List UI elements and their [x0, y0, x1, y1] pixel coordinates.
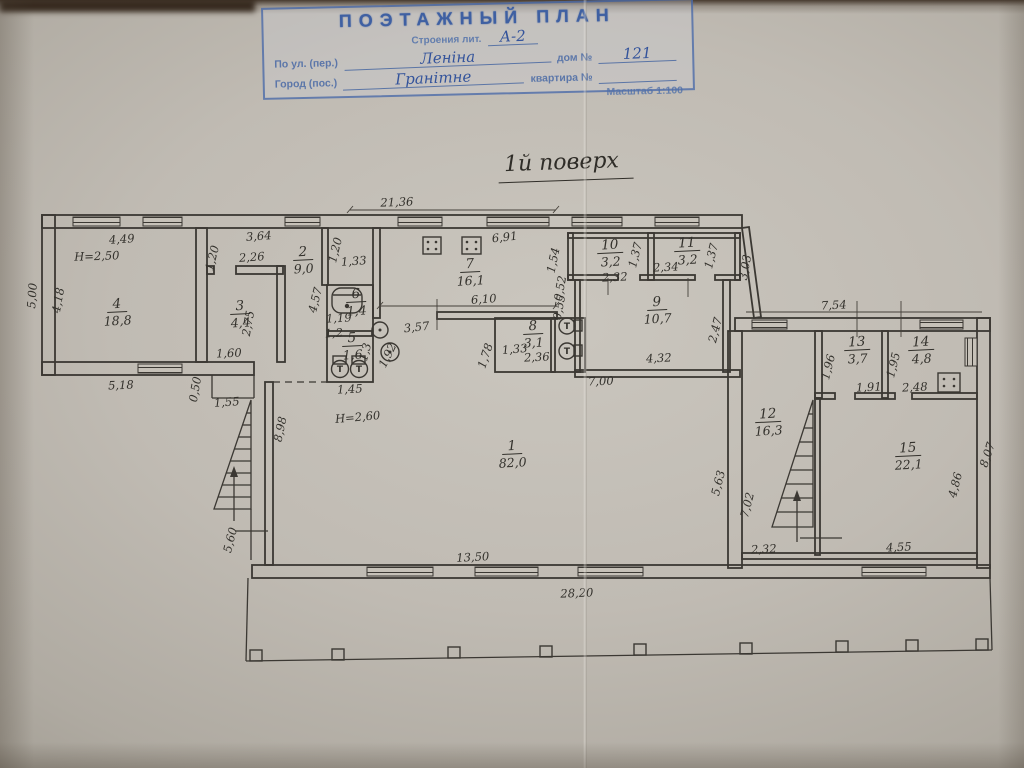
svg-text:14: 14 — [912, 334, 930, 351]
dimension-label: 1,91 — [856, 379, 882, 394]
svg-text:3,2: 3,2 — [600, 253, 621, 269]
sink-icon — [372, 322, 388, 338]
dimension-label: 28,20 — [559, 585, 593, 600]
room-label: 716,1 — [455, 255, 484, 288]
direction-arrow-icon — [793, 490, 801, 542]
room-label: 29,0 — [292, 243, 314, 276]
room-label: 182,0 — [497, 437, 527, 470]
dimension-label: 1,2 — [324, 326, 343, 341]
svg-text:13: 13 — [848, 334, 866, 351]
svg-text:82,0: 82,0 — [498, 454, 527, 470]
dimension-label: H=2,60 — [333, 408, 380, 426]
dimension-label: 3,03 — [736, 253, 754, 281]
photographed-floor-plan-page: { "stamp": { "title": "ПОЭТАЖНЫЙ ПЛАН", … — [0, 0, 1024, 768]
dimension-label: 6,10 — [470, 291, 497, 307]
dimension-label: 1,55 — [213, 394, 240, 410]
dimension-label: 4,49 — [107, 231, 135, 247]
dimension-label: H=2,50 — [73, 248, 120, 264]
svg-text:Т: Т — [337, 365, 344, 375]
svg-text:4,8: 4,8 — [910, 350, 932, 366]
dimension-label: 0,50 — [186, 375, 204, 403]
svg-text:Т: Т — [356, 365, 363, 375]
svg-text:22,1: 22,1 — [893, 456, 923, 472]
room-label: 1216,3 — [753, 405, 783, 438]
svg-text:2: 2 — [297, 244, 307, 260]
staircase-right — [772, 400, 842, 542]
dimension-label: 1,60 — [216, 346, 242, 361]
dimension-label: 5,00 — [24, 282, 40, 309]
room-label: 1522,1 — [892, 439, 922, 472]
dimension-label: 2,36 — [523, 349, 550, 364]
dimension-labels: 21,364,493,642,261,20H=2,505,004,182,751… — [24, 194, 998, 600]
svg-text:12: 12 — [759, 406, 777, 423]
dimension-label: 1,33 — [340, 253, 367, 269]
dimension-label: 4,57 — [305, 285, 325, 315]
svg-text:10: 10 — [601, 237, 619, 254]
dimension-label: 13,50 — [456, 549, 490, 565]
walls — [42, 215, 990, 578]
dimension-label: 4,86 — [945, 471, 965, 500]
dimension-label: 1,37 — [701, 241, 721, 270]
svg-text:16,3: 16,3 — [754, 422, 783, 438]
svg-text:5: 5 — [347, 330, 356, 346]
dimension-label: 1,20 — [202, 244, 222, 272]
dimension-label: 3,64 — [245, 228, 272, 244]
porch-outline — [246, 578, 992, 661]
dimension-label: 2,48 — [901, 379, 928, 394]
dimension-label: 1,78 — [475, 341, 496, 370]
stove-icon — [462, 237, 481, 254]
room-label: 144,8 — [907, 333, 935, 366]
stove-icon — [423, 237, 441, 254]
dimension-label: 4,55 — [885, 539, 912, 554]
svg-text:7: 7 — [465, 256, 475, 272]
svg-text:8: 8 — [528, 318, 538, 334]
svg-text:6: 6 — [351, 286, 361, 302]
svg-text:18,8: 18,8 — [103, 312, 132, 328]
svg-text:Т: Т — [564, 347, 571, 357]
svg-text:10,7: 10,7 — [643, 310, 672, 326]
dimension-label: 5,60 — [220, 526, 240, 554]
floor-plan-drawing: Т Т Т Т — [0, 0, 1024, 768]
staircase-left — [214, 400, 268, 560]
room-label: 418,8 — [102, 295, 132, 328]
dimension-label: 7,00 — [588, 374, 614, 389]
svg-text:9: 9 — [652, 294, 662, 310]
dimension-label: 21,36 — [379, 194, 413, 209]
dimension-label: 1,95 — [883, 351, 903, 379]
dimension-label: 5,18 — [108, 378, 134, 393]
dimension-label: 2,26 — [237, 249, 265, 265]
dimension-label: 0,55 — [550, 293, 568, 321]
svg-text:9,0: 9,0 — [293, 260, 314, 276]
dimension-label: 1,3 — [356, 341, 374, 362]
dimension-label: 4,32 — [645, 350, 672, 365]
svg-text:3,7: 3,7 — [847, 350, 868, 366]
dimension-label: 2,32 — [750, 541, 777, 556]
svg-text:4: 4 — [111, 296, 121, 312]
svg-text:Т: Т — [564, 322, 571, 332]
dimension-label: 1,19 — [326, 310, 352, 325]
dimension-label: 1,45 — [337, 381, 363, 396]
dimension-label: 1,54 — [544, 246, 563, 274]
svg-text:3,2: 3,2 — [677, 251, 698, 267]
room-label: 910,7 — [642, 293, 672, 326]
dimension-label: 2,34 — [652, 259, 679, 274]
dimension-label: 5,63 — [708, 469, 728, 497]
dimension-label: 7,54 — [821, 297, 847, 312]
svg-text:11: 11 — [678, 235, 696, 252]
svg-text:16,1: 16,1 — [456, 272, 485, 288]
dimension-label: 3,57 — [403, 319, 431, 336]
svg-text:1: 1 — [507, 438, 516, 454]
svg-text:15: 15 — [899, 440, 917, 457]
room-label: 103,2 — [596, 236, 624, 269]
dimension-label: 1,37 — [625, 240, 645, 269]
direction-arrow-icon — [230, 466, 238, 521]
toilet-icon: Т — [559, 343, 582, 359]
dimension-label: 4,18 — [49, 286, 67, 315]
dimension-label: 8,07 — [977, 440, 998, 469]
stove-icon — [938, 373, 960, 392]
dimension-label: 2,32 — [601, 269, 628, 284]
dimension-label: 7,02 — [737, 491, 757, 519]
room-label: 133,7 — [843, 333, 871, 366]
dimension-label: 6,91 — [491, 229, 518, 246]
